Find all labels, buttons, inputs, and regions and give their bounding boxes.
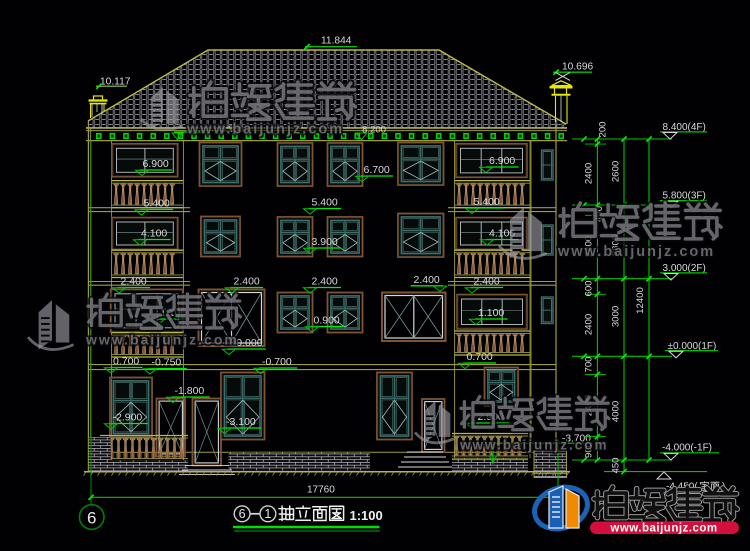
svg-text:2.400: 2.400 [474, 276, 500, 288]
svg-text:-4.000(-1F): -4.000(-1F) [662, 443, 712, 454]
svg-text:4.100: 4.100 [141, 228, 167, 240]
svg-text:6.900: 6.900 [489, 155, 515, 167]
svg-text:12400: 12400 [635, 287, 646, 314]
svg-text:6.700: 6.700 [364, 164, 390, 176]
svg-text:2400: 2400 [584, 314, 595, 335]
svg-text:8.200: 8.200 [362, 124, 386, 135]
svg-text:1: 1 [264, 507, 271, 521]
svg-text:2.400: 2.400 [121, 276, 147, 288]
svg-text:6: 6 [239, 507, 246, 521]
svg-text:450: 450 [610, 457, 621, 473]
svg-text:0.900: 0.900 [314, 315, 340, 327]
svg-text:6.900: 6.900 [143, 158, 169, 170]
svg-text:www.baijunjz.com: www.baijunjz.com [609, 523, 717, 535]
svg-text:200: 200 [598, 121, 609, 137]
svg-text:0.700: 0.700 [113, 356, 139, 368]
svg-text:www.baijunjz.com: www.baijunjz.com [186, 122, 344, 138]
svg-text:1:100: 1:100 [350, 508, 383, 523]
svg-text:-0.700: -0.700 [262, 356, 292, 368]
svg-text:2.400: 2.400 [312, 276, 338, 288]
svg-text:www.baijunjz.com: www.baijunjz.com [85, 332, 239, 348]
svg-text:5.400: 5.400 [312, 197, 338, 209]
svg-text:-0.750: -0.750 [152, 357, 182, 369]
svg-text:-2.900: -2.900 [113, 412, 143, 424]
svg-text:5.400: 5.400 [144, 198, 170, 210]
svg-text:2400: 2400 [584, 163, 595, 184]
svg-text:600: 600 [584, 280, 595, 296]
svg-text:10.696: 10.696 [562, 62, 593, 73]
svg-text:3000: 3000 [610, 306, 621, 327]
svg-text:17760: 17760 [307, 484, 335, 495]
svg-text:11.844: 11.844 [321, 36, 352, 47]
svg-text:1.100: 1.100 [478, 307, 504, 319]
svg-text:2600: 2600 [610, 161, 621, 182]
svg-text:2.400: 2.400 [414, 274, 440, 286]
svg-text:700: 700 [584, 356, 595, 372]
svg-text:-1.800: -1.800 [175, 385, 205, 397]
svg-text:2.400: 2.400 [234, 276, 260, 288]
svg-text:www.baijunjz.com: www.baijunjz.com [557, 244, 715, 260]
svg-text:www.baijunjz.com: www.baijunjz.com [459, 438, 609, 453]
svg-text:0.700: 0.700 [467, 351, 493, 363]
svg-text:5.800(3F): 5.800(3F) [663, 191, 706, 202]
svg-text:6: 6 [87, 509, 96, 528]
svg-text:3.900: 3.900 [312, 236, 338, 248]
svg-text:5.400: 5.400 [474, 196, 500, 208]
svg-text:-3.100: -3.100 [226, 416, 256, 428]
